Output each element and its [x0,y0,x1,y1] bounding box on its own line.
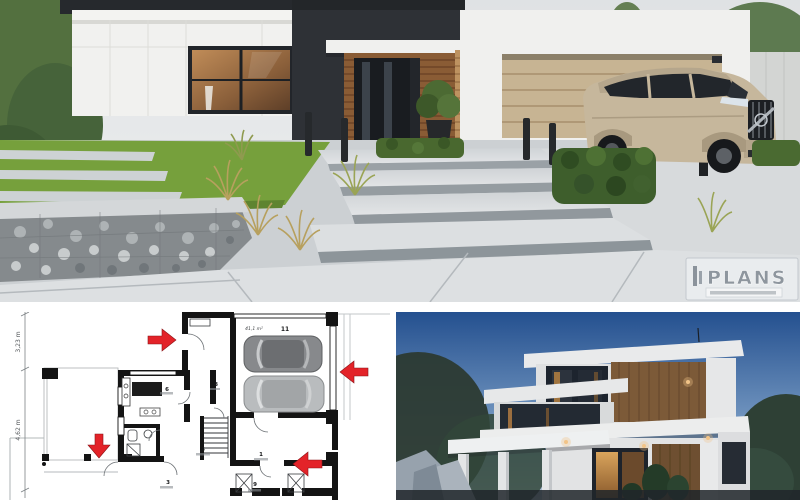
room-number: 9 [253,482,257,488]
room-number: 3 [166,480,170,486]
hedge-far-right [752,140,800,166]
watermark-brand: PLANS [707,267,787,289]
corner-window [188,46,294,114]
garage-car-dark [244,336,322,372]
entry-roof-edge [292,0,465,10]
room-number: 1 [259,452,263,458]
watermark-subtitle-strip [710,291,776,295]
ground-shadow [396,490,800,500]
hedge-right [552,146,656,204]
garage-car-light [244,376,324,412]
gabion-wall [0,197,252,282]
dimension-label-bottom: 4,62 m [15,419,22,440]
room-number: 8 [214,382,218,388]
dimension-label-top: 3,23 m [15,331,22,352]
white-fascia [72,10,305,20]
car-grille [748,100,774,140]
plans-watermark: PLANS [686,258,798,300]
floor-plan-drawing: 3,23 m 4,62 m [0,312,392,500]
house-project-collage: PLANS [0,0,800,500]
room-number: 4 [201,447,205,453]
front-door [354,58,420,150]
watermark-logo-icon [693,266,697,286]
wall-lamp-icon [712,56,722,63]
upper-white-pillar [706,358,736,424]
garage-area-label: 41,1 m² [245,326,263,332]
dusk-render-photo [396,312,800,500]
hedge-center [376,137,464,158]
room-number: 6 [165,387,169,393]
top-photo-house-exterior: PLANS [0,0,800,302]
garage-number-label: 11 [281,326,289,333]
car-wheel-front [707,139,741,173]
